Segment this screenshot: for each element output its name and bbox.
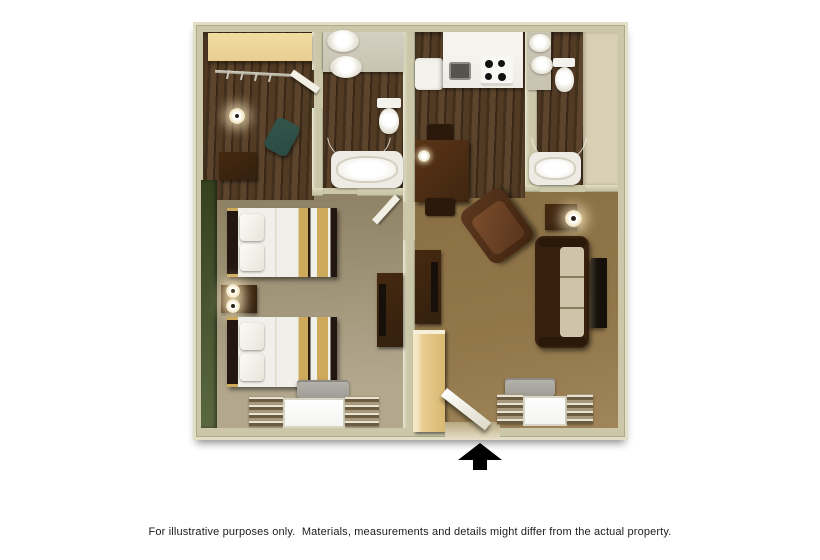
sofa-armrest [538,238,586,247]
pillow [240,323,264,350]
bedroom-ptac-unit [297,380,349,398]
wall-lamp [229,108,245,124]
arrow-head [458,443,502,460]
bed-2 [227,317,337,387]
living-drape [497,394,523,424]
table-candle [418,150,430,162]
headboard [227,208,238,277]
bathroom2-bathtub [529,152,581,185]
stove-burner [498,60,505,67]
pillow [240,354,264,381]
bed-1 [227,208,337,277]
bedroom-window [283,398,345,428]
tall-cabinet [413,330,445,432]
bathroom2-sink [529,34,551,52]
closet-shelf [208,33,312,61]
sofa [535,236,589,348]
living-room-dresser-tv [431,262,438,312]
bathroom2-bottom-wall-left [525,185,540,192]
bedroom-drape [249,396,283,426]
living-room-tv [591,258,607,328]
desk [219,152,257,180]
bathroom2-sink [531,56,553,74]
entry-threshold [445,422,500,440]
floorplan [193,22,628,440]
sofa-cushions [560,247,584,337]
green-accent-wall [201,180,217,428]
living-window [523,396,567,426]
floor-plan-image: For illustrative purposes only. Material… [0,0,820,560]
entrance-arrow-icon [458,443,502,471]
bathroom1-sink [330,56,362,78]
toilet-tank [377,98,401,108]
bathroom2-bottom-wall-right [585,185,618,192]
nightstand-lamp [226,284,240,298]
stove-burner [485,73,492,80]
bathroom1-sink [327,30,359,52]
bathroom1-wall-lower [312,108,323,188]
bathroom1-bottom-wall-left [312,188,323,196]
toilet-tank [553,58,575,67]
bedding [271,317,337,387]
toilet-bowl [379,108,399,134]
bedroom-tv [379,284,386,336]
side-table-lamp [565,210,582,227]
center-wall-upper [403,32,415,202]
dining-chair [425,198,455,216]
stove-burner [485,60,493,68]
nightstand-lamp [226,299,240,313]
toilet-bowl [555,67,574,92]
bathroom1-bathtub [331,151,403,188]
headboard [227,317,238,387]
bathroom2-side-area [583,32,618,185]
bedroom-drape [345,396,379,426]
arrow-stem [473,459,487,470]
living-drape [567,394,593,424]
pillow [240,214,264,241]
bathroom1-wall-upper [312,32,323,70]
disclaimer-text: For illustrative purposes only. Material… [0,526,820,538]
bedding [271,208,337,277]
kitchen-sink [449,62,471,80]
sofa-armrest [538,337,586,346]
stove-burner [498,73,506,81]
refrigerator [415,58,443,90]
pillow [240,244,264,271]
